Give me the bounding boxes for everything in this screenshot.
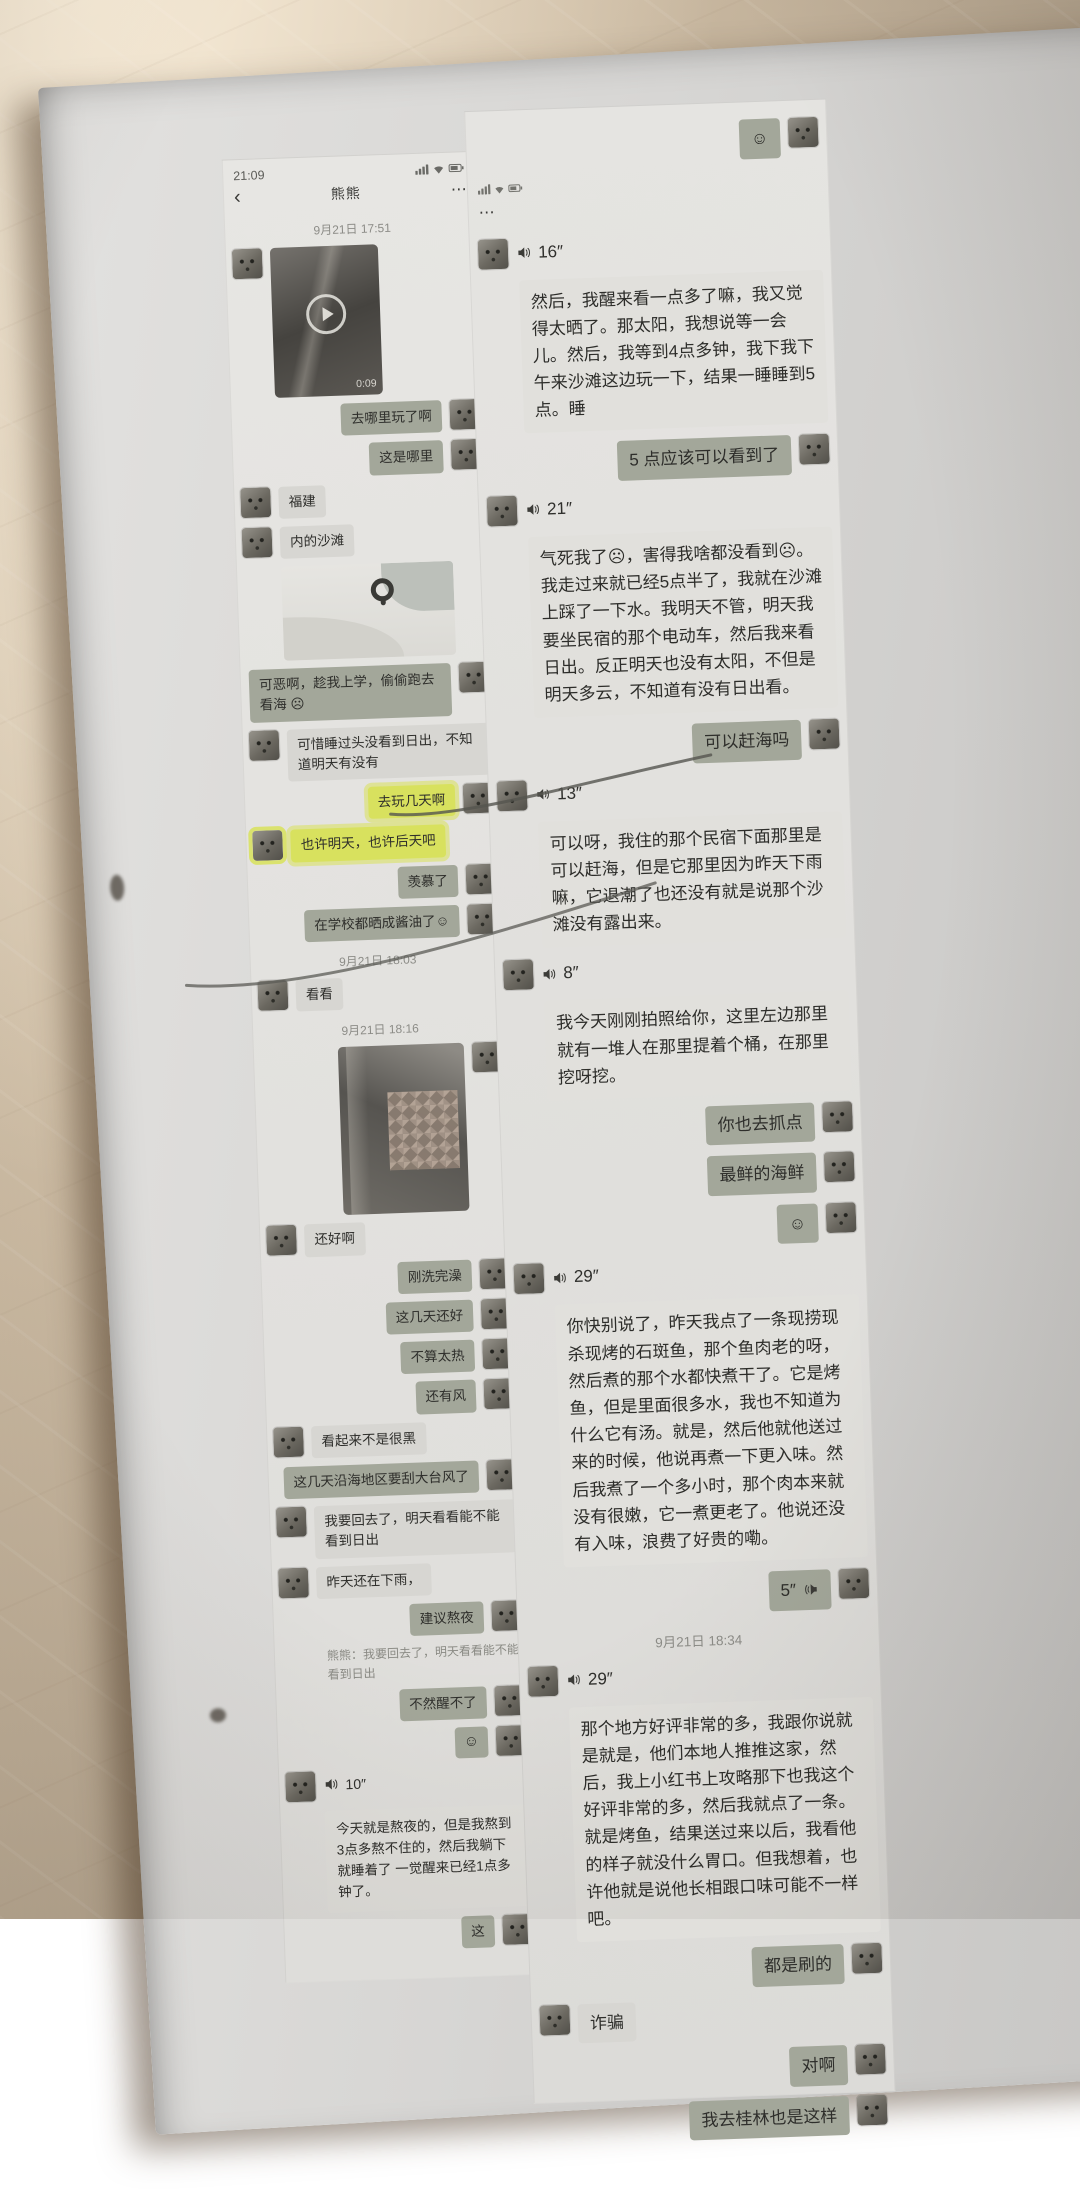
- voice-speaker-icon: [804, 1582, 820, 1598]
- outgoing-message-row: 不算太热: [270, 1338, 513, 1379]
- outgoing-message-row: 你也去抓点: [508, 1101, 853, 1152]
- voice-speaker-icon: [552, 1270, 568, 1286]
- video-thumbnail[interactable]: 0:09: [270, 244, 383, 398]
- outgoing-message-row: 不然醒不了: [282, 1685, 525, 1726]
- outgoing-message-row: 5 点应该可以看到了: [485, 434, 830, 485]
- avatar: [497, 780, 528, 811]
- mosaic-blur-region: [387, 1090, 460, 1170]
- outgoing-message-row: ☺: [512, 1202, 857, 1253]
- incoming-bubble: 也许明天，也许后天吧: [290, 825, 446, 863]
- avatar: [527, 1665, 558, 1696]
- emoji-bubble: ☺: [738, 118, 781, 159]
- outgoing-message-row: 羡慕了: [254, 863, 497, 904]
- timestamp: 9月21日 17:51: [231, 216, 473, 241]
- incoming-message-row: 21″: [487, 485, 832, 527]
- incoming-bubble: 诈骗: [577, 2002, 636, 2044]
- status-time: 21:09: [233, 168, 265, 183]
- timestamp: 9月21日 18:34: [526, 1623, 870, 1655]
- avatar: [788, 117, 819, 148]
- quoted-reply-text: 熊熊：我要回去了，明天看看能不能看到日出: [327, 1640, 524, 1684]
- outgoing-message-row: 这: [290, 1914, 533, 1955]
- voice-transcript: 气死我了☹，害得我啥都没看到☹。我走过来就已经5点半了，我就在沙滩上踩了一下水。…: [528, 527, 838, 719]
- avatar: [249, 730, 280, 761]
- outgoing-message-row: 这几天沿海地区要刮大台风了: [274, 1459, 517, 1500]
- avatar: [285, 1771, 316, 1802]
- avatar: [273, 1426, 304, 1457]
- status-icons: [415, 161, 467, 178]
- timestamp: 9月21日 18:16: [259, 1017, 501, 1042]
- voice-duration[interactable]: 8″: [541, 958, 579, 984]
- avatar: [278, 1567, 309, 1598]
- incoming-message-row: 诈骗: [539, 1993, 884, 2044]
- outgoing-bubble: 这几天沿海地区要刮大台风了: [283, 1460, 480, 1499]
- avatar: [513, 1263, 544, 1294]
- emoji-bubble: ☺: [454, 1727, 488, 1759]
- incoming-bubble: 看起来不是很黑: [311, 1422, 427, 1458]
- avatar: [242, 527, 273, 558]
- incoming-message-row: 29″: [527, 1654, 872, 1696]
- avatar: [503, 960, 534, 991]
- voice-transcript: 可以呀，我住的那个民宿下面那里是可以赶海，但是它那里因为昨天下雨嘛，它退潮了也还…: [538, 811, 846, 948]
- voice-message-group: 29″你快别说了，昨天我点了一条现捞现杀现烤的石斑鱼，那个鱼肉老的呀，然后煮的那…: [513, 1253, 867, 1570]
- outgoing-bubble: 去玩几天啊: [367, 784, 456, 819]
- printed-chat-area: 21:09 ‹ 熊熊: [61, 31, 1080, 2122]
- avatar: [809, 719, 840, 750]
- outgoing-bubble: 不算太热: [400, 1340, 475, 1375]
- outgoing-message-row: ☺: [284, 1725, 527, 1764]
- outgoing-voice-bubble[interactable]: 5″: [768, 1569, 832, 1611]
- voice-duration[interactable]: 13″: [535, 778, 583, 805]
- more-menu-icon[interactable]: ⋯: [451, 179, 469, 200]
- signal-wifi-battery-icon: [415, 161, 467, 175]
- incoming-message-row: 可惜睡过头没看到日出，不知道明天有没有: [249, 722, 493, 783]
- voice-message-group: 16″然后，我醒来看一点多了嘛，我又觉得太晒了。那太阳，我想说等一会儿。然后，我…: [478, 227, 829, 435]
- outgoing-bubble: 羡慕了: [397, 864, 459, 898]
- avatar: [825, 1202, 856, 1233]
- voice-duration[interactable]: 29″: [565, 1663, 613, 1690]
- avatar: [799, 434, 830, 465]
- avatar: [838, 1568, 869, 1599]
- avatar: [487, 495, 518, 526]
- avatar: [857, 2094, 888, 2125]
- incoming-bubble: 昨天还在下雨，: [316, 1563, 432, 1599]
- incoming-message-row: 昨天还在下雨，: [278, 1560, 521, 1601]
- outgoing-message-row: 建议熬夜: [279, 1600, 522, 1641]
- voice-speaker-icon: [541, 966, 557, 982]
- map-shore-area: [283, 613, 405, 660]
- voice-transcript: 今天就是熬夜的，但是我熬到3点多熬不住的，然后我躺下就睡着了 一觉醒来已经1点多…: [324, 1804, 531, 1913]
- incoming-message-row: 福建: [240, 479, 483, 520]
- outgoing-message-row: 这几天还好: [269, 1298, 512, 1339]
- outgoing-bubble: 5 点应该可以看到了: [617, 435, 792, 481]
- outgoing-bubble: 刚洗完澡: [397, 1259, 472, 1294]
- video-duration: 0:09: [356, 377, 377, 390]
- voice-transcript: 那个地方好评非常的多，我跟你说就是就是，他们本地人推推这家，然后，我上小红书上攻…: [569, 1696, 881, 1942]
- voice-transcript: 我今天刚刚拍照给你，这里左边那里就有一堆人在那里提着个桶，在那里挖呀挖。: [544, 991, 851, 1101]
- outgoing-message-row: 在学校都晒成酱油了☺: [255, 903, 498, 944]
- avatar: [822, 1101, 853, 1132]
- outgoing-bubble: 还有风: [415, 1380, 477, 1414]
- voice-message-group: 8″我今天刚刚拍照给你，这里左边那里就有一堆人在那里提着个桶，在那里挖呀挖。: [503, 949, 852, 1102]
- play-icon: [305, 293, 346, 334]
- avatar: [478, 238, 509, 269]
- outgoing-bubble: 建议熬夜: [409, 1601, 484, 1636]
- incoming-message-row: 看看: [257, 972, 500, 1013]
- incoming-bubble: 还好啊: [304, 1223, 366, 1257]
- outgoing-message-row: 都是刷的: [538, 1943, 883, 1994]
- back-chevron-icon[interactable]: ‹: [234, 187, 241, 207]
- avatar: [240, 487, 271, 518]
- incoming-message-row: 8″: [503, 949, 848, 991]
- incoming-message-row: 也许明天，也许后天吧: [252, 823, 495, 864]
- avatar: [232, 248, 263, 279]
- outgoing-bubble: 这: [461, 1915, 496, 1948]
- outgoing-bubble: 可以赶海吗: [692, 720, 802, 763]
- outgoing-bubble: 这是哪里: [369, 440, 444, 475]
- voice-speaker-icon: [525, 502, 541, 518]
- voice-duration[interactable]: 29″: [551, 1262, 599, 1289]
- outgoing-message-row: 对啊: [541, 2044, 886, 2095]
- voice-message-group: 10″今天就是熬夜的，但是我熬到3点多熬不住的，然后我躺下就睡着了 一觉醒来已经…: [285, 1764, 532, 1914]
- outgoing-bubble: 都是刷的: [751, 1944, 844, 1987]
- voice-transcript: 然后，我醒来看一点多了嘛，我又觉得太晒了。那太阳，我想说等一会儿。然后，我等到4…: [519, 269, 828, 433]
- voice-speaker-icon: [535, 787, 551, 803]
- voice-duration[interactable]: 10″: [323, 1770, 366, 1793]
- emoji-bubble: ☺: [776, 1203, 819, 1244]
- outgoing-bubble: 这几天还好: [385, 1299, 474, 1334]
- outgoing-bubble: 我去桂林也是这样: [689, 2096, 850, 2141]
- incoming-message-row: 内的沙滩: [242, 519, 485, 560]
- timestamp: 9月21日 18:03: [257, 947, 499, 972]
- status-bar-fragment: ⋯: [476, 167, 822, 228]
- incoming-message-row: 13″: [497, 769, 842, 811]
- incoming-message-row: 0:09: [232, 241, 479, 399]
- voice-speaker-icon: [566, 1672, 582, 1688]
- voice-message-group: 21″气死我了☹，害得我啥都没看到☹。我走过来就已经5点半了，我就在沙滩上踩了一…: [487, 485, 839, 720]
- avatar: [257, 980, 288, 1011]
- voice-duration[interactable]: 21″: [525, 494, 573, 521]
- location-map-card[interactable]: [281, 561, 456, 661]
- incoming-message-row: 10″: [285, 1764, 528, 1802]
- avatar: [266, 1225, 297, 1256]
- avatar: [252, 830, 283, 861]
- voice-message-group: 29″那个地方好评非常的多，我跟你说就是就是，他们本地人推推这家，然后，我上小红…: [527, 1654, 880, 1943]
- outgoing-bubble: 你也去抓点: [705, 1102, 815, 1145]
- incoming-message-row: 我要回去了，明天看看能不能看到日出: [276, 1499, 520, 1560]
- outgoing-message-row: 可以赶海吗: [495, 719, 840, 770]
- outgoing-message-row: 去哪里玩了啊: [237, 399, 480, 440]
- incoming-message-row: 29″: [513, 1253, 858, 1295]
- incoming-bubble: 内的沙滩: [280, 524, 355, 559]
- outgoing-bubble: 最鲜的海鲜: [707, 1153, 817, 1196]
- outgoing-message-row: [260, 1042, 508, 1218]
- voice-transcript: 你快别说了，昨天我点了一条现捞现杀现烤的石斑鱼，那个鱼肉老的呀，然后煮的那个水都…: [555, 1294, 868, 1567]
- outgoing-message-row: ☺: [474, 117, 819, 168]
- incoming-bubble: 可惜睡过头没看到日出，不知道明天有没有: [287, 722, 491, 782]
- incoming-message-row: 16″: [478, 227, 823, 269]
- outgoing-bubble: 不然醒不了: [399, 1687, 488, 1722]
- avatar: [276, 1507, 307, 1538]
- voice-speaker-icon: [516, 245, 532, 261]
- outgoing-bubble: 可恶啊，趁我上学，偷偷跑去看海 ☹: [249, 663, 453, 723]
- printed-paper-sheet: 21:09 ‹ 熊熊: [38, 18, 1080, 2134]
- avatar: [824, 1152, 855, 1183]
- outgoing-message-row: 可恶啊，趁我上学，偷偷跑去看海 ☹: [247, 662, 491, 723]
- photo-thumbnail[interactable]: [338, 1043, 470, 1215]
- outgoing-message-row: 5″: [524, 1568, 869, 1619]
- outgoing-bubble: 在学校都晒成酱油了☺: [304, 905, 460, 943]
- incoming-message-row: 看起来不是很黑: [273, 1419, 516, 1460]
- outgoing-bubble: 去哪里玩了啊: [340, 400, 442, 436]
- right-chat-screenshot: ☺ ⋯ 16″然后，我醒来看一点多了嘛，我又觉得太晒了。那太阳，我想说等一会儿。…: [464, 99, 895, 2104]
- right-message-list: ☺ ⋯ 16″然后，我醒来看一点多了嘛，我又觉得太晒了。那太阳，我想说等一会儿。…: [473, 106, 888, 2157]
- outgoing-message-row: 还有风: [272, 1378, 515, 1419]
- incoming-bubble: 看看: [295, 978, 343, 1012]
- chat-title: 熊熊: [330, 183, 361, 204]
- voice-duration[interactable]: 16″: [516, 236, 564, 263]
- outgoing-message-row: 我去桂林也是这样: [543, 2094, 888, 2145]
- avatar: [851, 1943, 882, 1974]
- incoming-message-row: 还好啊: [266, 1218, 509, 1259]
- outgoing-message-row: 这是哪里: [239, 439, 482, 480]
- voice-speaker-icon: [323, 1777, 339, 1793]
- avatar: [539, 2004, 570, 2035]
- incoming-bubble: 我要回去了，明天看看能不能看到日出: [314, 1499, 518, 1559]
- voice-message-group: 13″可以呀，我住的那个民宿下面那里是可以赶海，但是它那里因为昨天下雨嘛，它退潮…: [497, 769, 847, 950]
- outgoing-message-row: 最鲜的海鲜: [510, 1152, 855, 1203]
- outgoing-message-row: 刚洗完澡: [267, 1258, 510, 1299]
- incoming-bubble: 福建: [278, 485, 326, 519]
- outgoing-bubble: 对啊: [789, 2045, 848, 2087]
- location-pin-icon: [371, 578, 395, 602]
- avatar: [855, 2044, 886, 2075]
- outgoing-message-row: 去玩几天啊: [251, 783, 494, 824]
